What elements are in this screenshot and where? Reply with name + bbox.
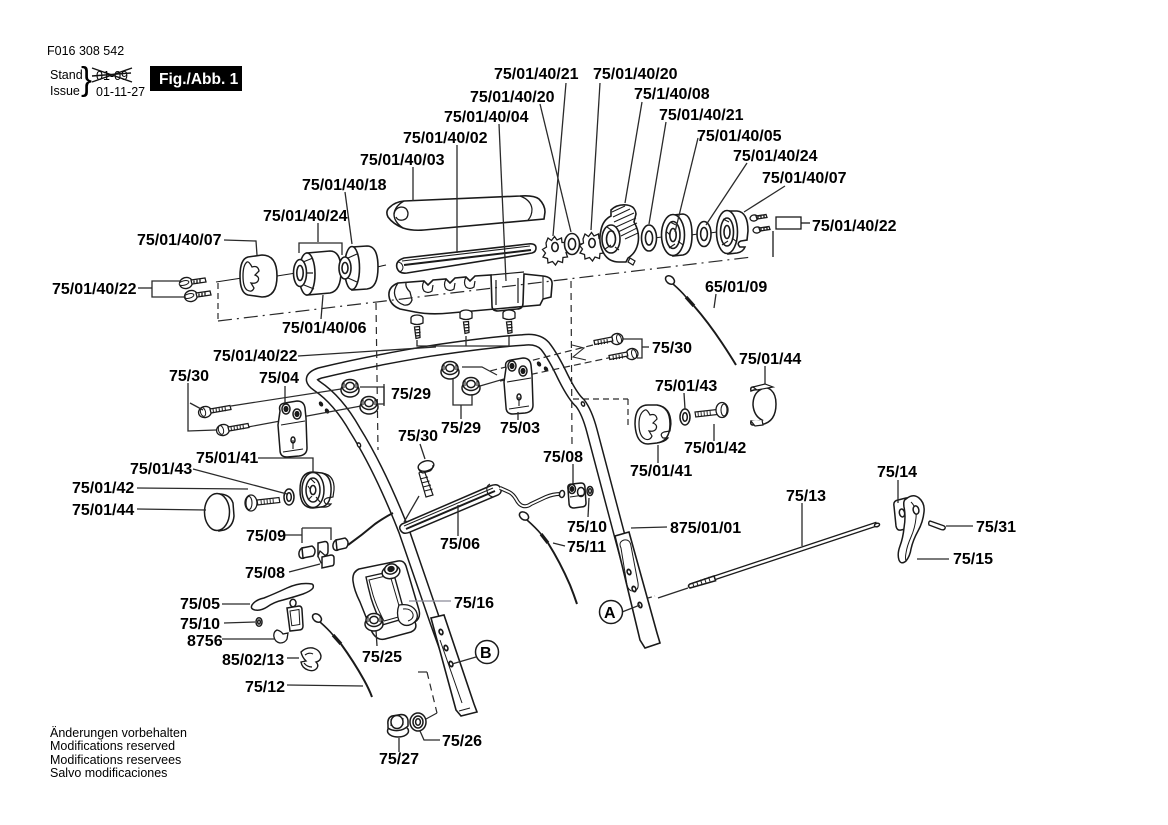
svg-text:75/01/40/20: 75/01/40/20: [470, 89, 555, 106]
svg-text:75/27: 75/27: [379, 751, 419, 768]
svg-text:75/29: 75/29: [441, 420, 481, 437]
svg-text:75/13: 75/13: [786, 488, 826, 505]
svg-text:A: A: [604, 605, 616, 622]
svg-text:75/08: 75/08: [245, 565, 285, 582]
svg-text:65/01/09: 65/01/09: [705, 279, 767, 296]
svg-text:Fig./Abb. 1: Fig./Abb. 1: [159, 71, 239, 88]
svg-text:Modifications reservees: Modifications reservees: [50, 753, 181, 767]
svg-text:75/01/40/24: 75/01/40/24: [733, 148, 818, 165]
svg-text:75/01/41: 75/01/41: [196, 450, 258, 467]
svg-text:75/01/40/03: 75/01/40/03: [360, 152, 445, 169]
svg-text:75/01/40/02: 75/01/40/02: [403, 130, 488, 147]
svg-text:75/14: 75/14: [877, 464, 917, 481]
svg-text:875/01/01: 875/01/01: [670, 520, 741, 537]
svg-text:75/30: 75/30: [398, 428, 438, 445]
svg-text:Issue: Issue: [50, 84, 80, 98]
svg-text:75/01/40/22: 75/01/40/22: [52, 281, 137, 298]
svg-text:75/29: 75/29: [391, 386, 431, 403]
svg-text:75/01/42: 75/01/42: [684, 440, 746, 457]
svg-text:75/10: 75/10: [180, 616, 220, 633]
svg-text:B: B: [480, 645, 492, 662]
svg-text:75/09: 75/09: [246, 528, 286, 545]
svg-text:75/01/40/07: 75/01/40/07: [762, 170, 847, 187]
svg-text:Salvo modificaciones: Salvo modificaciones: [50, 766, 167, 780]
svg-text:75/26: 75/26: [442, 733, 482, 750]
svg-text:Änderungen vorbehalten: Änderungen vorbehalten: [50, 726, 187, 740]
svg-text:75/04: 75/04: [259, 370, 299, 387]
svg-text:75/01/40/06: 75/01/40/06: [282, 320, 367, 337]
svg-text:F016 308 542: F016 308 542: [47, 44, 124, 58]
svg-text:8756: 8756: [187, 633, 223, 650]
svg-text:75/01/43: 75/01/43: [130, 461, 192, 478]
svg-text:75/01/40/21: 75/01/40/21: [494, 66, 579, 83]
svg-text:75/10: 75/10: [567, 519, 607, 536]
svg-text:75/01/40/04: 75/01/40/04: [444, 109, 529, 126]
svg-text:75/01/40/24: 75/01/40/24: [263, 208, 348, 225]
svg-text:75/31: 75/31: [976, 519, 1016, 536]
svg-text:75/30: 75/30: [169, 368, 209, 385]
svg-text:85/02/13: 85/02/13: [222, 652, 284, 669]
svg-text:75/01/40/21: 75/01/40/21: [659, 107, 744, 124]
svg-text:75/01/40/07: 75/01/40/07: [137, 232, 222, 249]
svg-text:75/01/40/05: 75/01/40/05: [697, 128, 782, 145]
svg-text:75/01/40/22: 75/01/40/22: [213, 348, 298, 365]
svg-text:75/01/43: 75/01/43: [655, 378, 717, 395]
svg-text:75/01/42: 75/01/42: [72, 480, 134, 497]
svg-text:75/1/40/08: 75/1/40/08: [634, 86, 710, 103]
svg-text:75/30: 75/30: [652, 340, 692, 357]
svg-text:75/05: 75/05: [180, 596, 220, 613]
svg-text:75/15: 75/15: [953, 551, 993, 568]
svg-text:01-11-27: 01-11-27: [96, 85, 145, 99]
svg-text:Stand: Stand: [50, 68, 83, 82]
svg-text:75/06: 75/06: [440, 536, 480, 553]
svg-text:75/08: 75/08: [543, 449, 583, 466]
svg-text:75/11: 75/11: [567, 539, 606, 556]
svg-text:75/16: 75/16: [454, 595, 494, 612]
svg-text:Modifications reserved: Modifications reserved: [50, 739, 175, 753]
svg-text:75/01/40/20: 75/01/40/20: [593, 66, 678, 83]
svg-text:75/01/40/22: 75/01/40/22: [812, 218, 897, 235]
svg-text:75/12: 75/12: [245, 679, 285, 696]
svg-text:75/01/44: 75/01/44: [72, 502, 134, 519]
svg-text:75/03: 75/03: [500, 420, 540, 437]
svg-text:}: }: [81, 60, 92, 97]
svg-text:75/01/40/18: 75/01/40/18: [302, 177, 387, 194]
svg-text:75/01/44: 75/01/44: [739, 351, 801, 368]
svg-text:75/25: 75/25: [362, 649, 402, 666]
svg-text:75/01/41: 75/01/41: [630, 463, 692, 480]
